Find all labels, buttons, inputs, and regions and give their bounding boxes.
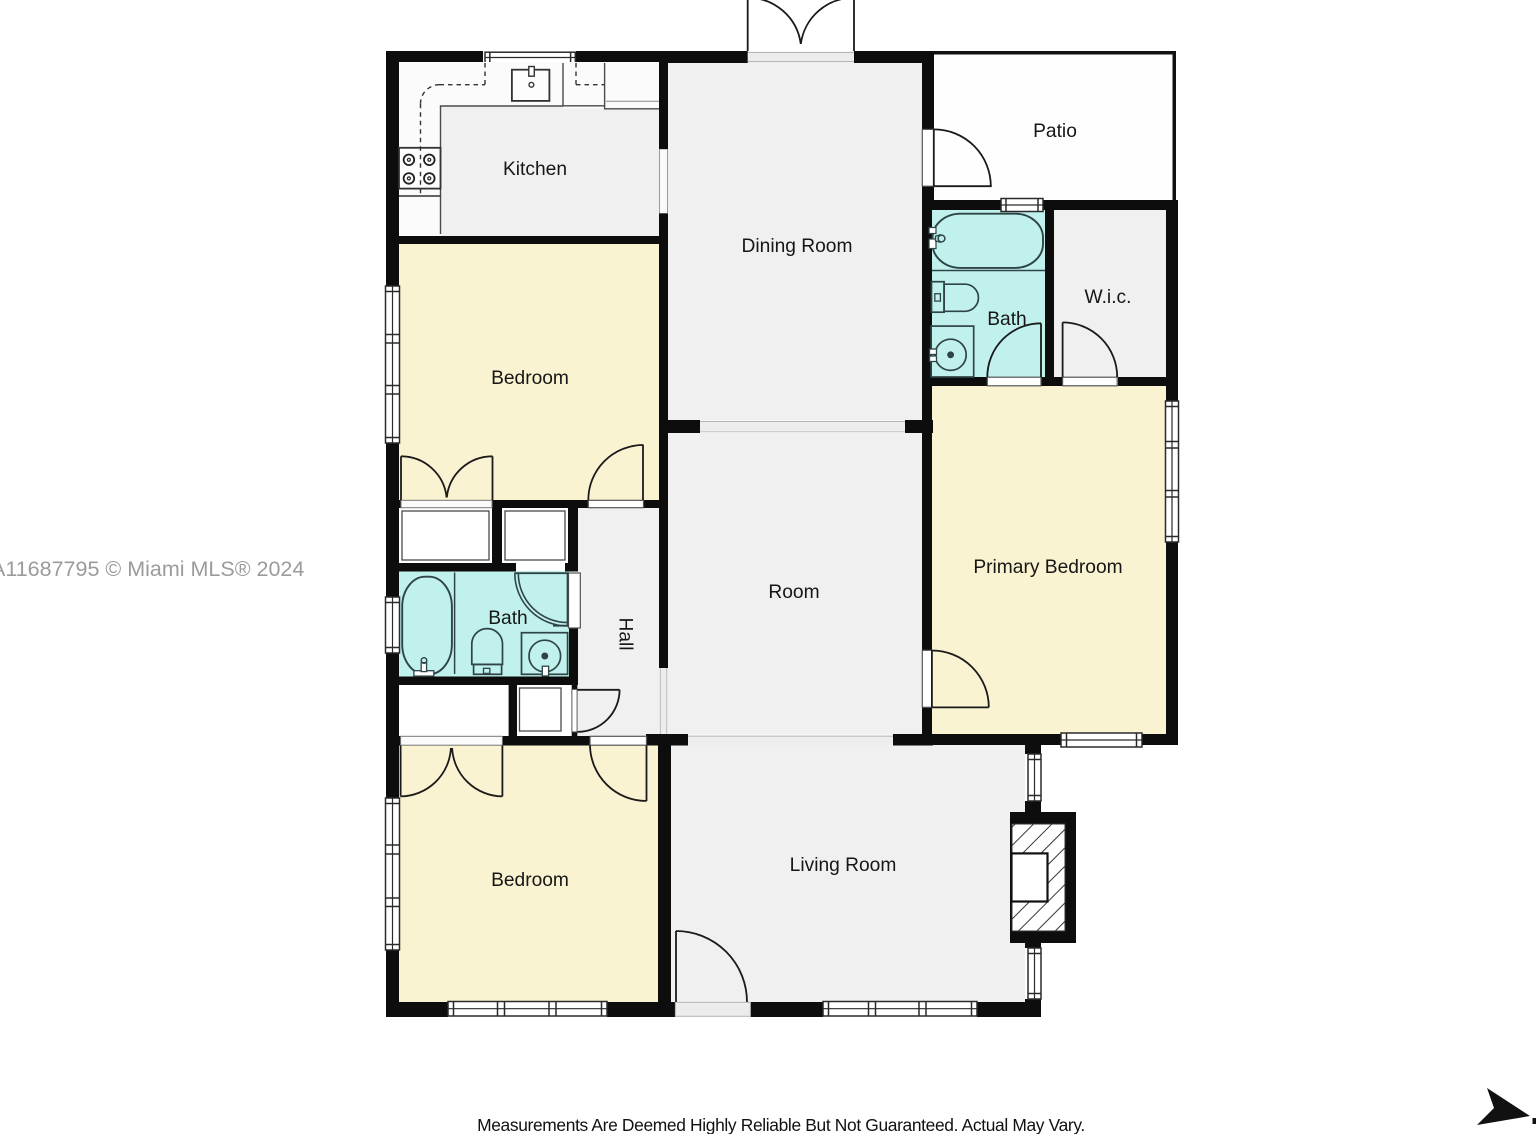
svg-text:W.i.c.: W.i.c. (1085, 287, 1132, 308)
svg-text:Hall: Hall (615, 617, 636, 650)
svg-text:Bath: Bath (987, 309, 1026, 330)
svg-text:Room: Room (768, 582, 819, 603)
svg-text:Patio: Patio (1033, 121, 1077, 142)
svg-text:Bath: Bath (488, 608, 527, 629)
svg-text:Living Room: Living Room (790, 855, 897, 876)
svg-text:Measurements Are Deemed Highly: Measurements Are Deemed Highly Reliable … (477, 1115, 1085, 1134)
svg-text:Dining Room: Dining Room (742, 236, 853, 257)
svg-text:Bedroom: Bedroom (491, 368, 569, 389)
svg-text:Primary Bedroom: Primary Bedroom (973, 557, 1122, 578)
svg-text:Bedroom: Bedroom (491, 870, 569, 891)
svg-text:A11687795 © Miami MLS® 2024: A11687795 © Miami MLS® 2024 (0, 557, 304, 581)
svg-text:Kitchen: Kitchen (503, 159, 567, 180)
